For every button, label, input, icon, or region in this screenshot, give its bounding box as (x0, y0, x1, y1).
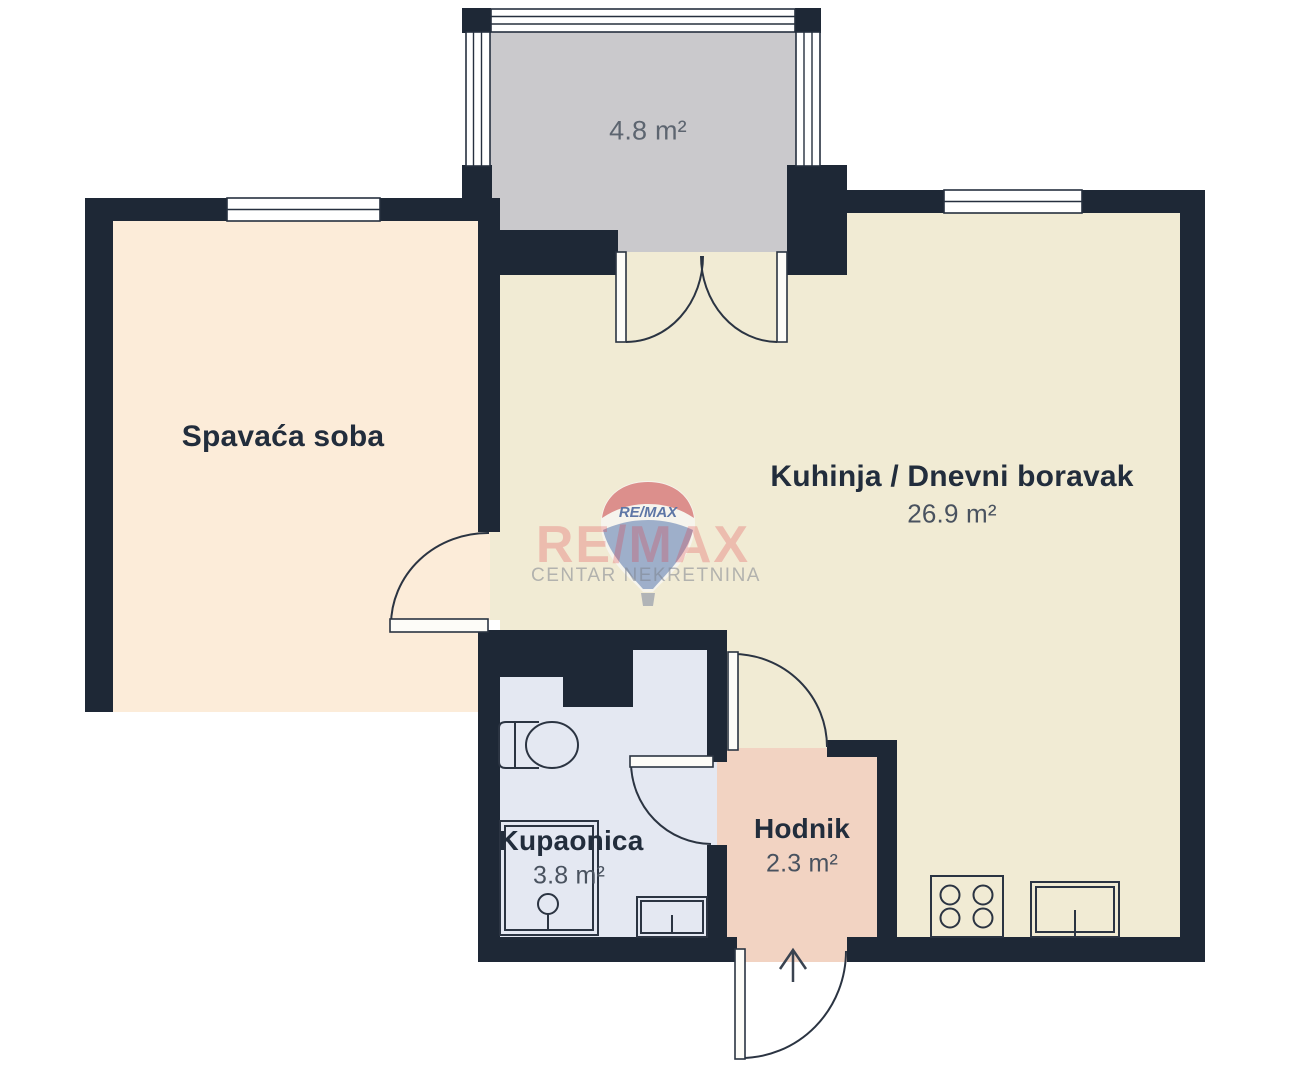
entry-door (735, 949, 846, 1059)
room-label-bedroom: Spavaća soba (182, 420, 385, 454)
wall-bathroom-right-lower (707, 845, 727, 962)
bathroom-door-threshold (707, 762, 717, 845)
wall-bedroom-right-lower (478, 630, 500, 962)
wall-bottom-right (847, 937, 1205, 962)
room-label-kitchen-living: Kuhinja / Dnevni boravak (770, 460, 1133, 494)
hallway-door-threshold (717, 762, 727, 845)
floor-plan: RE/MAX RE/MAX CENTAR NEKRETNINA Spavaća … (0, 0, 1298, 1080)
room-area-bathroom: 3.8 m² (533, 862, 605, 891)
door-leaf (735, 949, 745, 1059)
balcony-glazing-left (466, 32, 490, 166)
wall-balcony-left-pier (462, 165, 492, 205)
room-label-hallway: Hodnik (754, 813, 850, 845)
room-area-balcony: 4.8 m² (609, 116, 687, 147)
wall-kitchen-right (1180, 190, 1205, 962)
balcony-glazing-right (796, 32, 820, 166)
kitchen-door-threshold (490, 532, 500, 620)
wall-bathroom-top-block (478, 630, 563, 677)
wall-bedroom-left (85, 198, 113, 712)
room-kitchen-floor (618, 252, 787, 275)
watermark-subtitle: CENTAR NEKRETNINA (531, 565, 761, 587)
wall-bathroom-right-upper (707, 630, 727, 762)
room-bedroom-floor (113, 221, 478, 712)
wall-bottom-left (478, 937, 737, 962)
door-swing-arc (741, 951, 846, 1058)
wall-balcony-right-pier (787, 165, 847, 275)
wall-bedroom-top (85, 198, 500, 221)
wall-balcony-bottom-left (491, 230, 618, 275)
room-area-hallway: 2.3 m² (766, 850, 838, 879)
wall-kitchen-top (847, 190, 1205, 213)
room-balcony-floor (618, 230, 787, 253)
room-area-kitchen-living: 26.9 m² (907, 499, 997, 530)
room-label-bathroom: Kupaonica (499, 825, 644, 857)
wall-balcony-corner-left (462, 8, 491, 33)
wall-balcony-corner-right (795, 8, 821, 33)
room-kitchen-floor (727, 630, 897, 748)
bedroom-door-threshold (478, 532, 490, 620)
wall-bathroom-niche-block (563, 630, 633, 707)
balcony-glazing-top (491, 9, 795, 32)
wall-hallway-right (877, 740, 897, 962)
